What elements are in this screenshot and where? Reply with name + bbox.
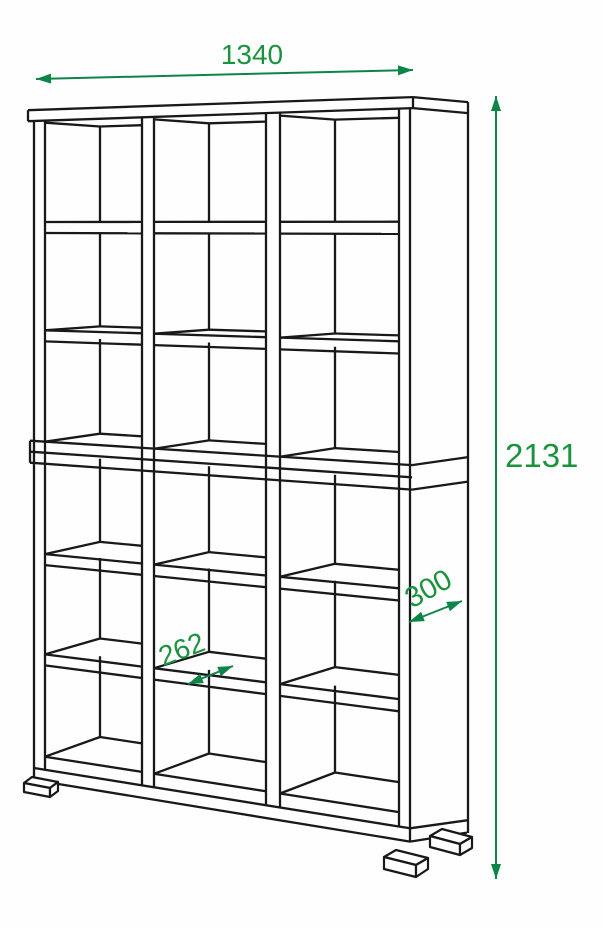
height-dimension-label: 2131 xyxy=(505,437,578,474)
cabinet-outline xyxy=(28,97,468,842)
width-dimension-label: 1340 xyxy=(221,39,283,70)
dimension-drawing-canvas: 1340 2131 300 262 xyxy=(0,0,603,928)
cell-width-dimension-arrow xyxy=(188,666,233,684)
shelving-unit-diagram: 1340 2131 300 262 xyxy=(0,0,603,928)
height-dimension-arrow xyxy=(491,96,501,879)
cell-width-dimension-label: 262 xyxy=(154,626,209,672)
